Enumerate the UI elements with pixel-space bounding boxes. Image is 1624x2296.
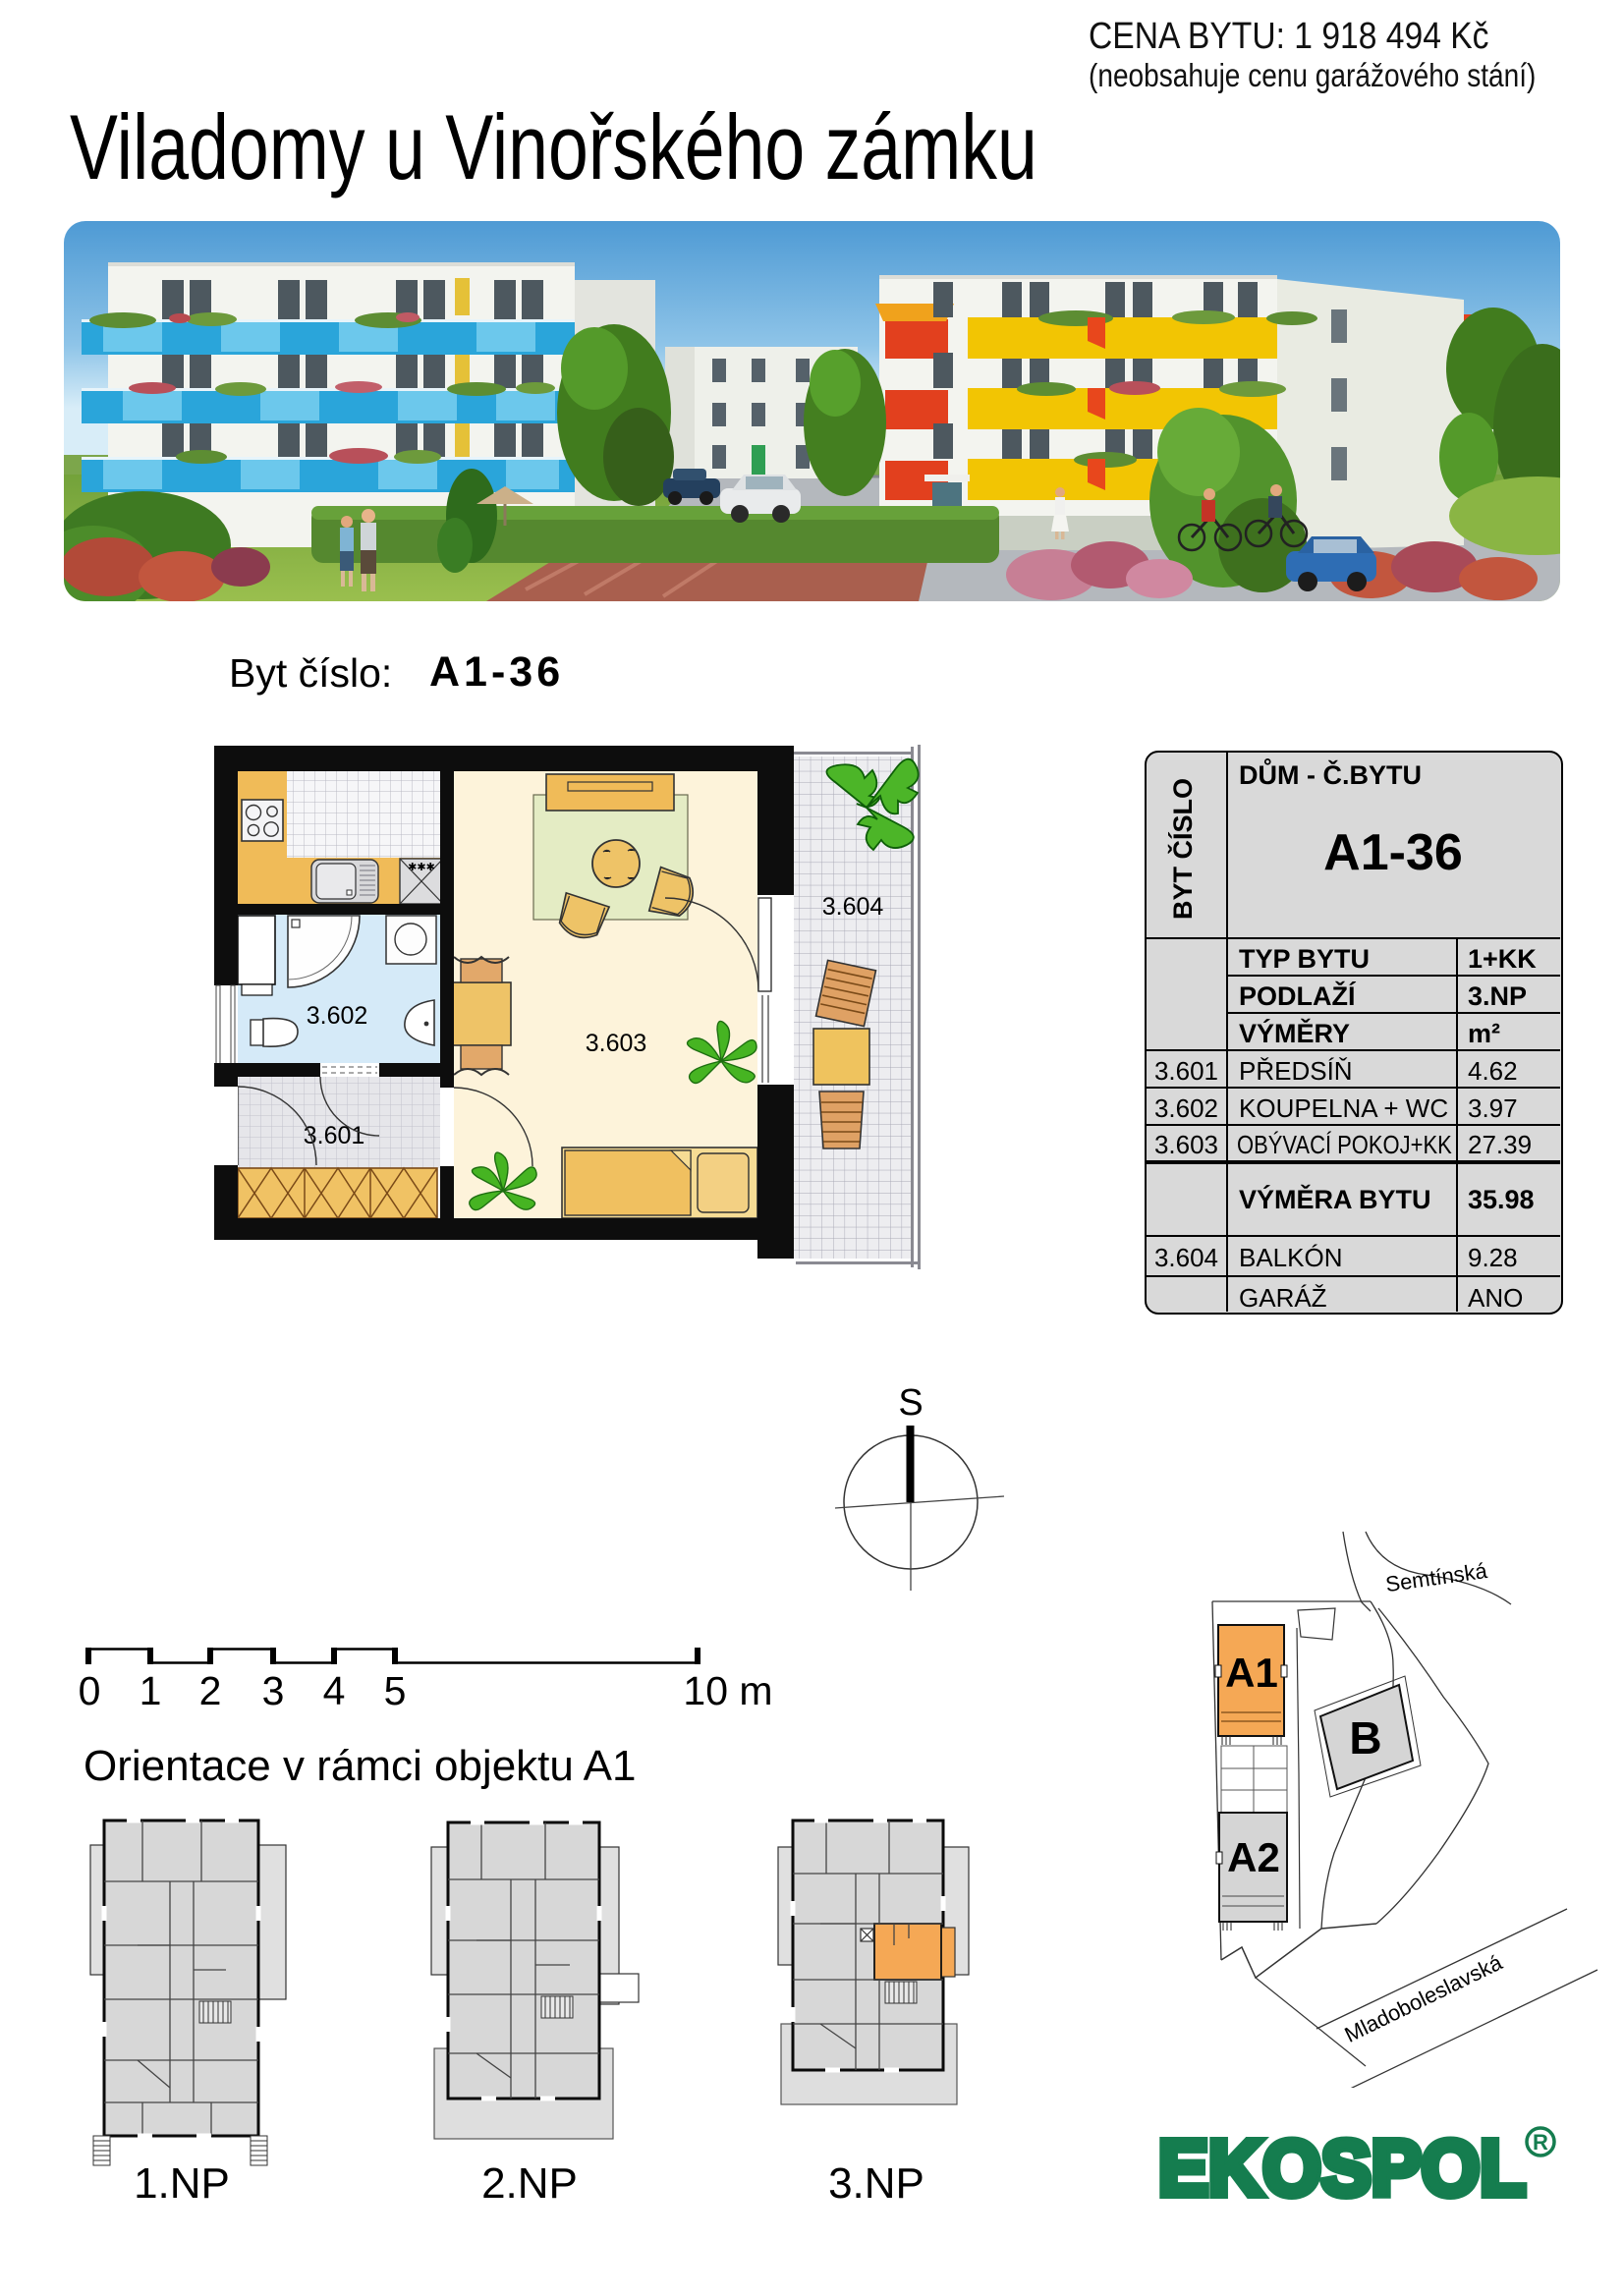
svg-text:✱✱✱: ✱✱✱ (408, 862, 435, 873)
svg-text:Mladoboleslavská: Mladoboleslavská (1341, 1949, 1507, 2046)
svg-text:1.NP: 1.NP (134, 2159, 230, 2206)
svg-text:S: S (898, 1382, 923, 1424)
svg-text:R: R (1533, 2130, 1548, 2155)
svg-text:A2: A2 (1227, 1834, 1280, 1880)
svg-text:5: 5 (384, 1668, 407, 1713)
svg-text:0: 0 (79, 1668, 100, 1713)
svg-text:3.NP: 3.NP (828, 2159, 924, 2206)
svg-text:2.NP: 2.NP (481, 2159, 578, 2206)
svg-text:3: 3 (262, 1668, 285, 1713)
svg-text:10 m: 10 m (683, 1668, 772, 1713)
svg-text:3.603: 3.603 (586, 1030, 647, 1057)
svg-text:3.602: 3.602 (307, 1002, 368, 1030)
svg-text:Semtínská: Semtínská (1384, 1558, 1489, 1596)
svg-text:3.601: 3.601 (304, 1122, 365, 1149)
svg-text:2: 2 (199, 1668, 222, 1713)
svg-text:4: 4 (323, 1668, 346, 1713)
svg-text:EKOSPOL: EKOSPOL (1158, 2124, 1526, 2212)
svg-text:3.604: 3.604 (822, 893, 884, 921)
svg-text:1: 1 (140, 1668, 162, 1713)
svg-text:B: B (1349, 1712, 1381, 1764)
svg-text:A1: A1 (1225, 1650, 1278, 1696)
